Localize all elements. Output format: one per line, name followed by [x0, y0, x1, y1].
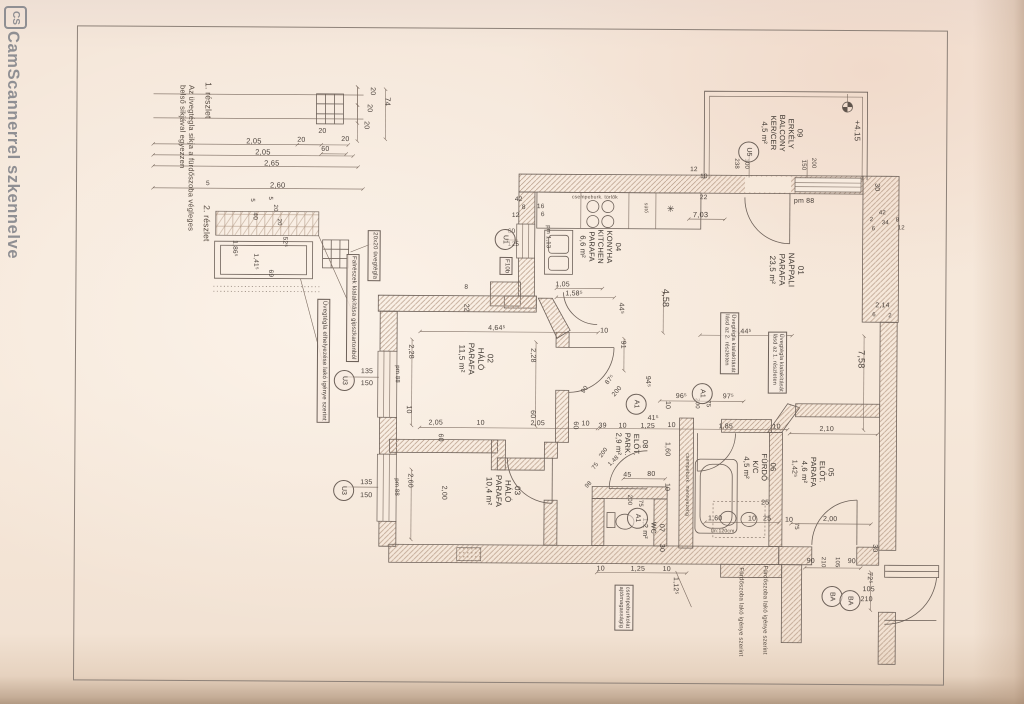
dimension-label: 72⁵	[865, 572, 873, 583]
dimension-label: pm 88	[392, 478, 399, 496]
dimension-label: 10	[600, 328, 608, 336]
dimension-label: 238	[732, 158, 739, 169]
boxed-note: 20x20 üvegtégla	[367, 230, 380, 281]
dimension-label: 2,05	[429, 419, 443, 427]
dimension-label: 2,60	[405, 473, 413, 487]
dimension-label: ✳	[667, 204, 675, 215]
dimension-label: 10	[662, 483, 670, 491]
dimension-label: 60	[571, 421, 579, 429]
dimension-label: 10	[748, 515, 756, 523]
dimension-label: 10	[404, 405, 412, 413]
dimension-label: 150	[360, 492, 372, 500]
dimension-label: 210	[819, 557, 826, 568]
dimension-label: 150	[799, 160, 806, 171]
dimension-label: 1,25	[631, 566, 645, 574]
dimension-label: 8	[896, 217, 900, 224]
dimension-label: 2	[870, 217, 874, 224]
boxed-note: Üvegtégla elhelyezése lakó igénye szerin…	[317, 299, 331, 423]
dimension-label: 94⁵	[643, 376, 651, 387]
dimension-label: 4,58	[660, 289, 671, 307]
marker-label: U3	[340, 486, 347, 495]
dimension-label: 2,10	[820, 426, 834, 434]
marker-label: A1	[699, 389, 706, 398]
dimension-label: 135	[360, 479, 372, 487]
marker-label: U3	[341, 376, 348, 385]
dimension-label: 2,05	[255, 148, 270, 157]
dimension-label: 16	[537, 203, 545, 211]
dimension-label: 10	[773, 424, 781, 432]
dimension-label: 22	[461, 304, 469, 312]
dimension-label: 10	[668, 422, 676, 430]
dimension-label: 91	[618, 341, 626, 349]
dimension-label: 1,86⁵	[231, 240, 239, 256]
dimension-label: 10	[700, 173, 708, 181]
dimension-label: 30	[657, 544, 665, 552]
dimension-label: 10	[477, 420, 485, 428]
dimension-label: 20	[341, 136, 349, 144]
dimension-label: 1,58⁵	[565, 290, 583, 298]
page-border	[73, 26, 947, 685]
dimension-label: 34	[882, 220, 889, 227]
marker-label: U5	[745, 147, 752, 156]
dimension-label: 60	[528, 410, 536, 418]
boxed-note: csempeburkolat ajtómagasságig	[614, 585, 633, 631]
dimension-label: 1,60	[662, 442, 670, 456]
dimension-label: 2,60	[270, 182, 285, 191]
dimension-label: 10	[663, 566, 671, 574]
dimension-label: 200	[809, 158, 816, 169]
walls	[376, 173, 899, 664]
dimension-label: 2,65	[264, 159, 279, 168]
dimension-label: pm 88	[794, 198, 815, 206]
dimension-label: 1,42⁵	[789, 460, 797, 478]
dimension-label: 150	[361, 380, 373, 388]
dimension-label: 12	[898, 225, 905, 232]
dimension-label: 52⁵	[281, 237, 289, 248]
annotation: csempeburk. mennyezetig	[683, 453, 689, 516]
dimension-label: 20	[368, 87, 376, 95]
dimension-label: 20	[271, 205, 278, 212]
annotation: Fürdőszoba lakó igénye szerint	[760, 566, 768, 655]
marker-label: BA	[846, 596, 853, 605]
dimension-label: 25	[763, 516, 771, 524]
dimension-label: 12	[690, 166, 698, 174]
room-label: 04 KONYHA KITCHEN PARAFA 6,6 m²	[578, 229, 622, 264]
dimension-label: 39	[599, 423, 607, 431]
dimension-label: 1,85	[719, 423, 733, 431]
dimension-label: 42	[879, 210, 886, 217]
room-label: 01 NAPPALI PARAFA 23,5 m²	[767, 253, 805, 288]
dimension-label: 75	[636, 500, 643, 507]
dimension-label: 210	[860, 596, 872, 604]
reference-marker-u3: U3	[333, 480, 354, 501]
dimension-label: 200	[625, 495, 632, 506]
dimension-label: 10	[619, 423, 627, 431]
boxed-note: F10b	[499, 257, 512, 276]
dimension-label: 105	[833, 557, 840, 568]
marker-label: U1	[502, 235, 509, 244]
annotation: tm:120cm	[711, 529, 735, 535]
dimension-label: 10	[597, 566, 605, 574]
dimension-label: 1,60	[708, 515, 722, 523]
dimension-label: 30	[872, 183, 880, 191]
dimension-label: 97⁵	[723, 393, 734, 401]
dimension-label: 90	[848, 558, 856, 566]
boxed-note: Falrészek kialakítása gipszkartonból	[346, 254, 360, 362]
dimension-label: 40	[251, 212, 259, 220]
room-label: 09 ERKÉLY BALCONY KER/CER 4,5 m²	[759, 115, 803, 153]
dimension-label: 8	[522, 204, 526, 212]
annotation: 2. részlet	[202, 205, 212, 242]
reference-marker-a1: A1	[626, 394, 647, 415]
reference-marker-a1: A1	[692, 383, 713, 404]
reference-marker-u3: U3	[334, 370, 355, 391]
dimension-label: 25	[761, 500, 769, 508]
dimension-label: 90	[807, 558, 815, 566]
dimension-label: 1,25	[641, 423, 655, 431]
annotation: sütő	[642, 203, 648, 213]
wall-infill-patch	[457, 548, 481, 561]
room-label: 05 ELŐT. PARAFA 4,6 m²	[799, 457, 835, 487]
dimension-label: 1,41⁵	[251, 253, 259, 269]
dimension-label: 75	[792, 523, 799, 530]
dimension-label: 6	[872, 226, 876, 233]
annotation: Az üvegtégla sikja a fürdőszoba végleges…	[177, 85, 196, 231]
dimension-label: 80	[647, 471, 655, 479]
dimension-label: 2,28	[528, 348, 536, 362]
reference-marker-ba: BA	[839, 590, 860, 611]
dimension-label: 60	[435, 434, 443, 442]
dimension-label: 69	[266, 269, 274, 277]
dimension-label: 1,05	[555, 281, 569, 289]
marker-label: A1	[634, 514, 641, 523]
dimension-label: 2,00	[823, 516, 837, 524]
dimension-label: 42	[515, 196, 523, 204]
annotation: csempeburk. törlők	[572, 195, 618, 201]
dimension-label: 22	[700, 194, 708, 202]
dimension-label: 5	[206, 180, 210, 188]
dimension-label: 105	[863, 586, 875, 594]
dimension-label: 74	[383, 97, 392, 106]
dimension-label: pm 1,13	[544, 225, 551, 248]
dimension-label: 2,28	[406, 344, 414, 358]
room-label: 06 FÜRDŐ K/C 4,5 m²	[741, 453, 777, 481]
reference-marker-u1: U1	[495, 229, 516, 250]
dimension-label: 2,14	[875, 302, 889, 310]
dimension-label: +4.15	[852, 120, 862, 141]
dimension-label: 2	[888, 313, 892, 320]
dimension-label: 60	[321, 146, 329, 154]
dimension-label: 20	[275, 219, 282, 226]
dimension-label: 5	[248, 198, 255, 202]
reference-marker-a1: A1	[627, 508, 648, 529]
dimension-label: 30	[870, 544, 878, 552]
dimension-label: 10	[582, 420, 590, 428]
cooktop	[587, 200, 614, 227]
dimension-label: 4,64⁵	[488, 325, 506, 333]
dimension-label: 6	[541, 211, 545, 219]
dimension-label: 2,05	[531, 420, 545, 428]
dimension-label: 1,12⁵	[671, 577, 679, 595]
floor-plan: .w{fill:url(#h);stroke:#6d6159;stroke-wi…	[0, 0, 1024, 704]
annotation: Fürdőszoba lakó igénye szerint	[736, 567, 744, 656]
dimension-label: 2,05	[246, 137, 261, 146]
dimension-label: 96⁵	[676, 393, 687, 401]
dimension-label: 20	[361, 121, 369, 129]
dimension-label: 6	[872, 312, 876, 319]
dimension-label: 10	[663, 401, 671, 409]
dimension-label: 20	[364, 104, 372, 112]
dimension-label: pm 88	[393, 365, 400, 383]
dimension-label: 8	[464, 284, 468, 292]
dimension-label: 135	[361, 368, 373, 376]
dimension-label: 20	[297, 137, 305, 145]
dimension-label: 12	[512, 212, 520, 220]
reference-marker-u5: U5	[738, 141, 759, 162]
marker-label: BA	[828, 592, 835, 601]
scanned-floor-plan-page: CS CamScannerrel szkennelve .	[0, 0, 1024, 704]
dimension-label: 20	[318, 128, 326, 136]
dimension-label: 2,00	[439, 486, 447, 500]
boxed-note: Üvegtégla kialakítását lásd az 2. részle…	[720, 312, 739, 374]
marker-label: A1	[633, 400, 640, 409]
dimension-label: 44⁵	[616, 303, 624, 314]
dimension-label: 7,03	[693, 211, 708, 220]
annotation: 1. részlet	[203, 82, 213, 119]
dimension-label: 45	[623, 472, 631, 480]
boxed-note: Üvegtégla kialakítását lásd az 1. részle…	[768, 332, 787, 394]
room-label: 02 HÁLÓ PARAFA 11,5 m²	[457, 343, 495, 375]
dimension-label: 7,58	[856, 350, 867, 368]
dimension-label: 5	[266, 196, 273, 200]
room-label: 08 ELŐT. PARK. 2,9 m²	[613, 433, 649, 456]
room-label: 03 HÁLÓ PARAFA 10,4 m²	[484, 475, 522, 507]
